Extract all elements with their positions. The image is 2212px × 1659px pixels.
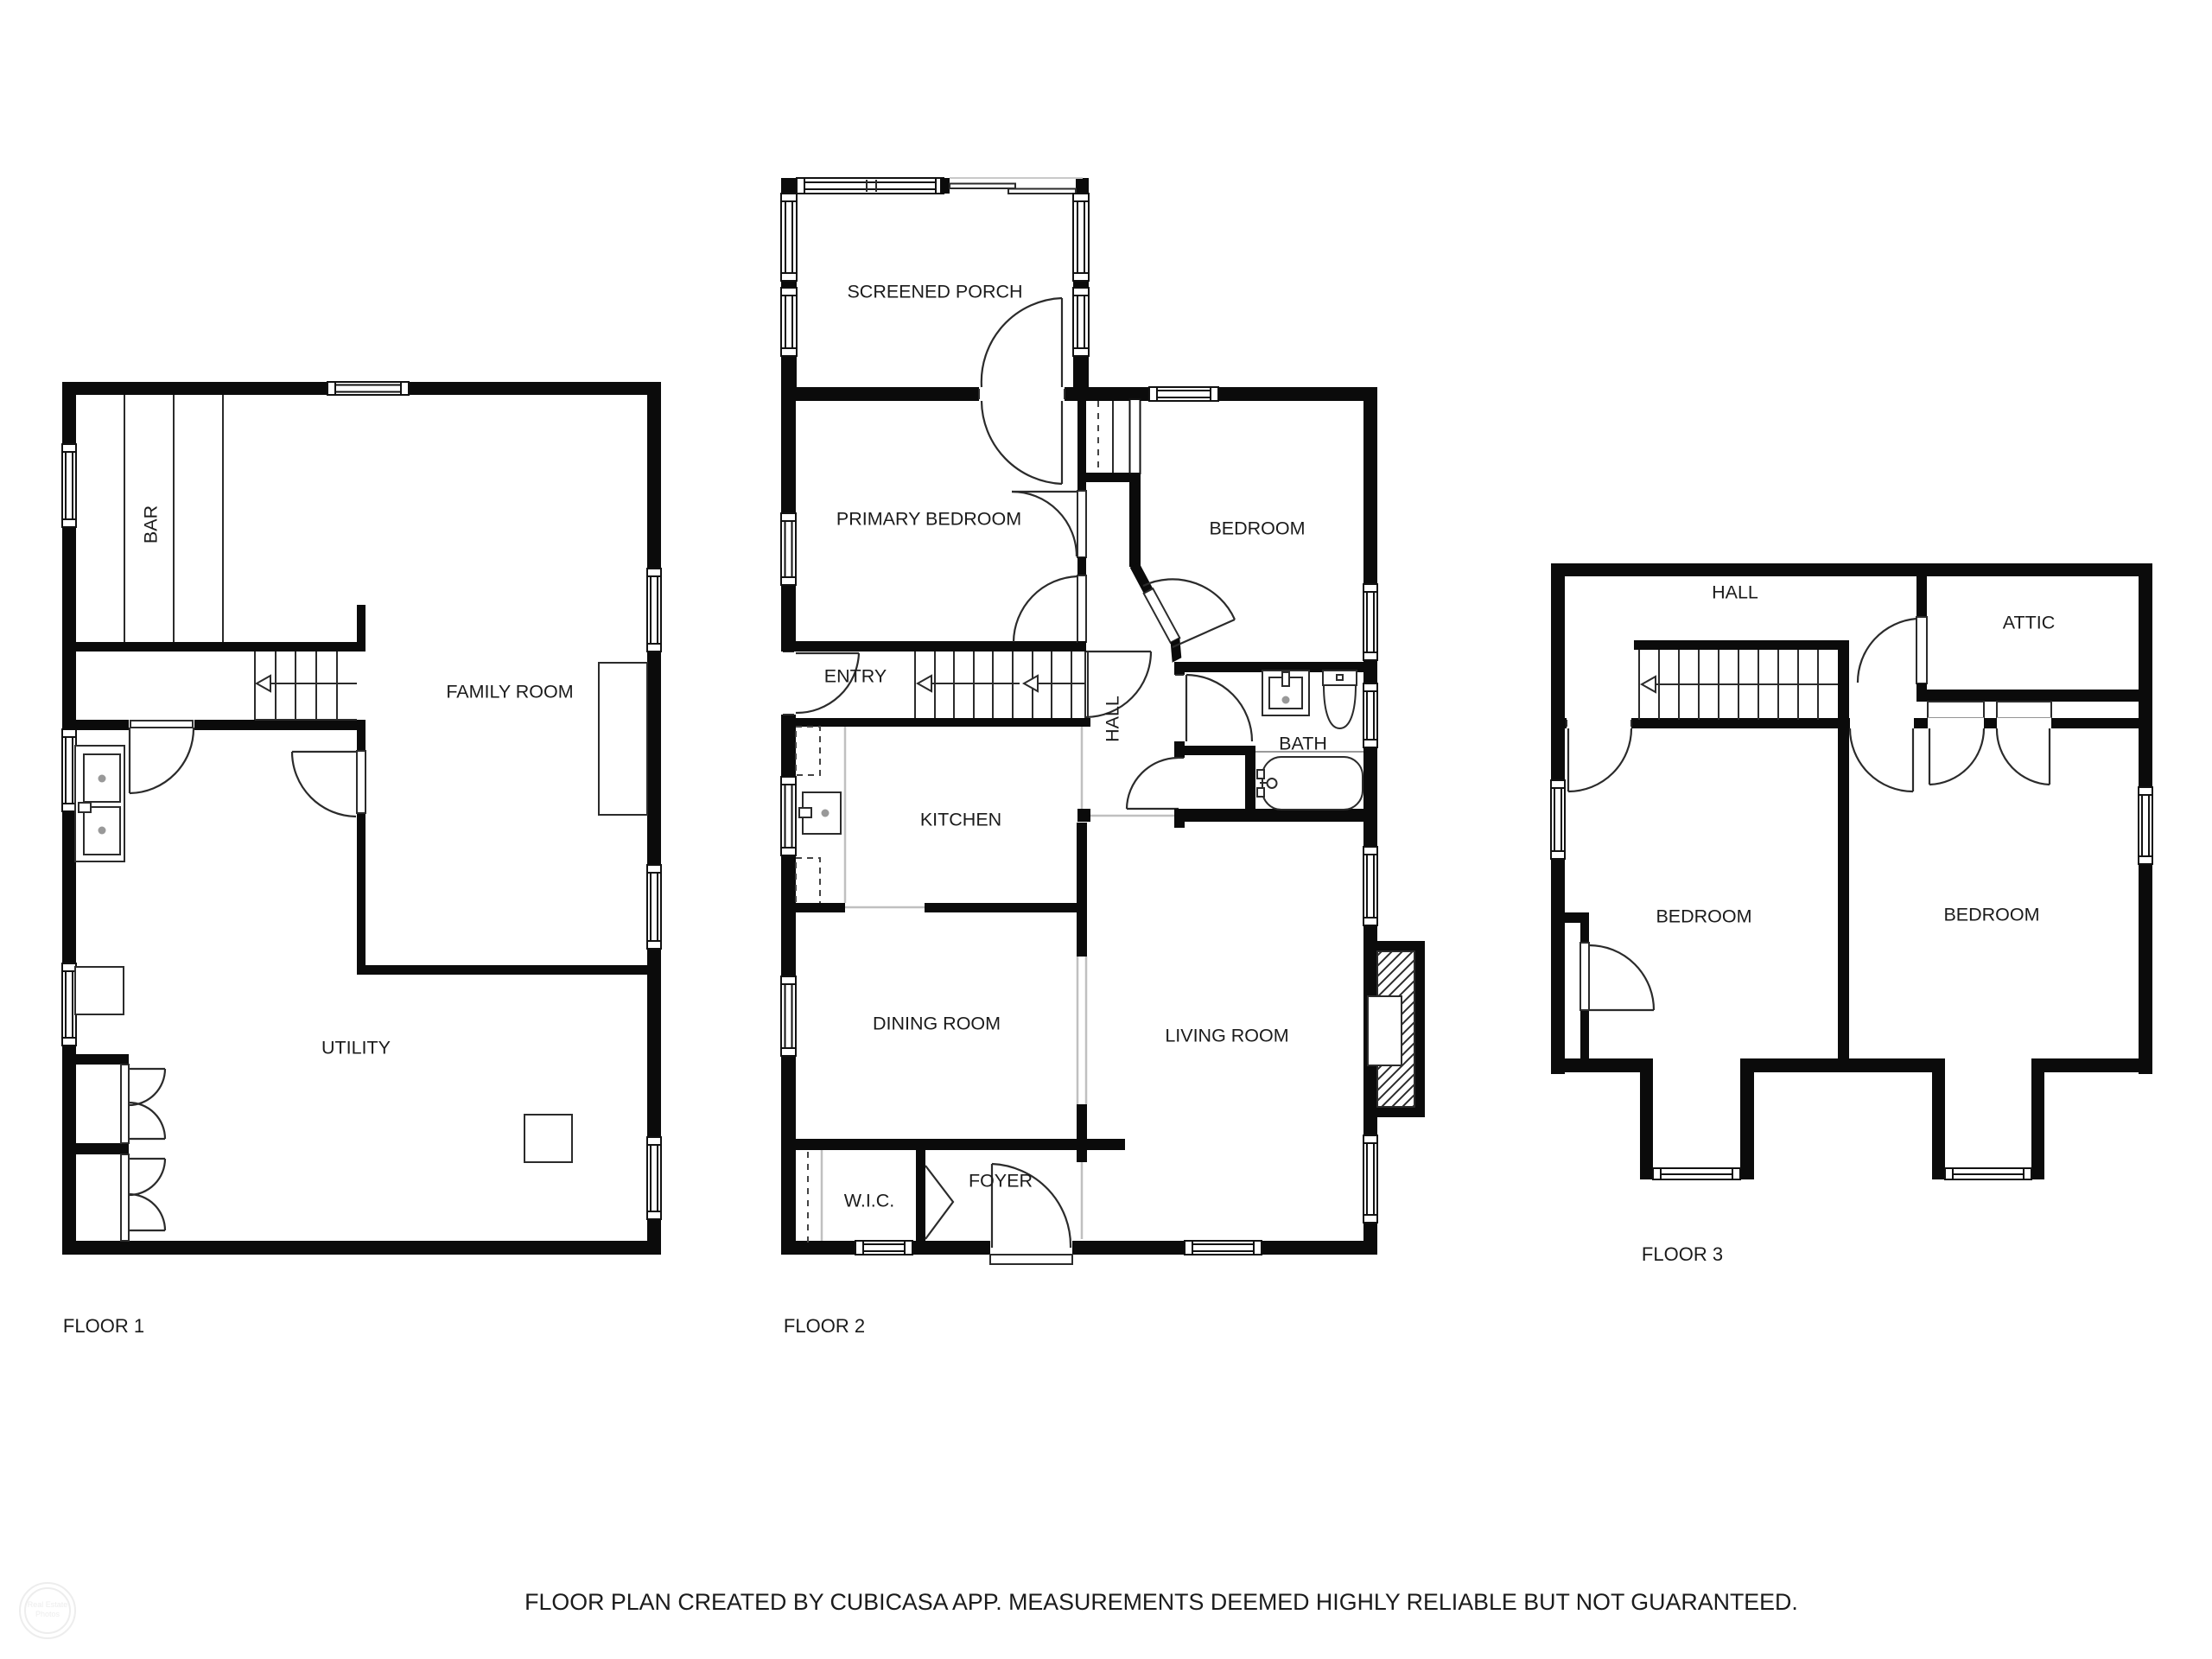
svg-text:W.I.C.: W.I.C. — [844, 1191, 895, 1211]
svg-text:FLOOR 1: FLOOR 1 — [63, 1315, 144, 1337]
svg-text:KITCHEN: KITCHEN — [920, 810, 1001, 830]
svg-text:SCREENED PORCH: SCREENED PORCH — [847, 282, 1022, 302]
svg-text:HALL: HALL — [1712, 582, 1758, 603]
svg-text:LIVING ROOM: LIVING ROOM — [1165, 1026, 1288, 1046]
svg-text:BATH: BATH — [1279, 734, 1327, 754]
svg-text:Photos: Photos — [35, 1610, 60, 1618]
svg-text:ENTRY: ENTRY — [824, 666, 887, 687]
svg-text:BAR: BAR — [141, 505, 162, 543]
svg-text:FLOOR PLAN CREATED BY CUBICASA: FLOOR PLAN CREATED BY CUBICASA APP. MEAS… — [524, 1589, 1798, 1615]
svg-text:FAMILY ROOM: FAMILY ROOM — [446, 682, 573, 702]
svg-text:FLOOR 3: FLOOR 3 — [1642, 1243, 1723, 1265]
svg-text:DINING ROOM: DINING ROOM — [873, 1014, 1001, 1034]
svg-text:Real Estate: Real Estate — [28, 1600, 68, 1609]
svg-text:BEDROOM: BEDROOM — [1943, 905, 2039, 925]
svg-text:ATTIC: ATTIC — [2003, 613, 2056, 633]
svg-text:BEDROOM: BEDROOM — [1209, 518, 1305, 539]
svg-text:HALL: HALL — [1103, 696, 1123, 742]
svg-text:PRIMARY BEDROOM: PRIMARY BEDROOM — [836, 509, 1021, 530]
svg-text:UTILITY: UTILITY — [321, 1038, 391, 1058]
svg-text:FOYER: FOYER — [969, 1171, 1033, 1192]
svg-text:FLOOR 2: FLOOR 2 — [784, 1315, 865, 1337]
svg-text:BEDROOM: BEDROOM — [1656, 906, 1751, 927]
